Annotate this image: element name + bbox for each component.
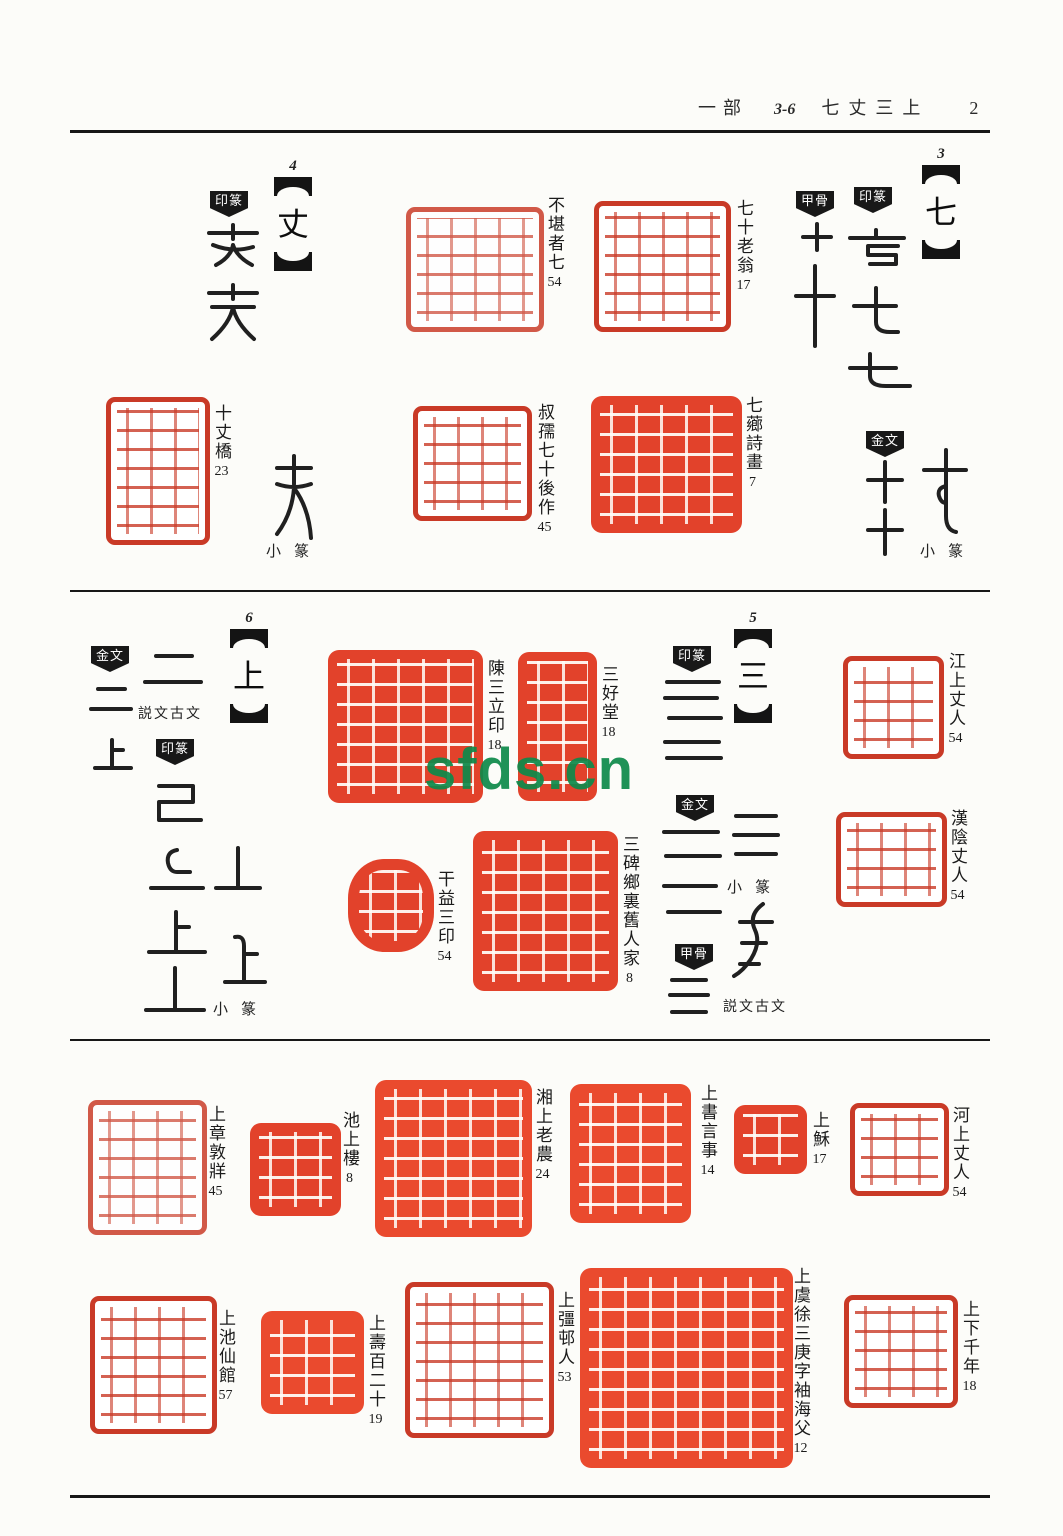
bracket-top-icon	[230, 629, 268, 648]
bracket-top-icon	[734, 629, 772, 648]
seal-caption-number: 54	[949, 731, 963, 747]
seal-caption: 干益三印 54	[435, 870, 454, 965]
seal-caption-text: 叔孺七十後作	[535, 403, 554, 517]
script-label-jinwen: 金文	[91, 646, 129, 672]
seal-script-shang-glyph-icon	[145, 844, 209, 896]
seal-caption-number: 14	[701, 1163, 715, 1179]
bronze-shang-glyph-icon	[87, 678, 135, 720]
bracket-bottom-icon	[922, 240, 960, 259]
seal-caption-text: 十丈橋	[212, 404, 231, 461]
seal-caption-number: 17	[813, 1152, 827, 1168]
seal-caption-text: 上虞徐三庚字袖海父	[791, 1267, 810, 1438]
bracket-bottom-icon	[734, 704, 772, 723]
seal-script-qi-glyph-icon	[848, 350, 912, 392]
bronze-qi-glyph-icon	[864, 506, 906, 558]
seal-caption-text: 上下千年	[960, 1300, 979, 1376]
entry-number: 6	[226, 610, 272, 627]
seal-impression	[413, 406, 532, 521]
seal-caption-text: 漢陰丈人	[948, 809, 967, 885]
seal-caption: 上彊邨人 53	[555, 1291, 574, 1386]
seal-caption-text: 上書言事	[698, 1084, 717, 1160]
seal-impression	[843, 656, 944, 759]
seal-impression	[850, 1103, 949, 1196]
radical-section: 一部	[698, 94, 748, 120]
script-label-shuowen: 説文古文	[723, 996, 787, 1016]
bracket-bottom-icon	[230, 704, 268, 723]
entry-range: 3-6	[774, 101, 795, 119]
script-label-yinzhuan: 印篆	[854, 187, 892, 213]
seal-impression	[250, 1123, 341, 1216]
seal-caption-number: 57	[219, 1388, 233, 1404]
seal-caption-text: 上穌	[810, 1111, 829, 1149]
seal-caption: 叔孺七十後作 45	[535, 403, 554, 536]
page-number: 2	[969, 98, 978, 119]
seal-impression	[473, 831, 618, 991]
seal-caption-number: 45	[209, 1184, 223, 1200]
seal-caption-text: 不堪者七	[545, 196, 564, 272]
seal-caption-text: 池上樓	[340, 1111, 359, 1168]
seal-script-zhang-glyph-icon	[201, 221, 265, 271]
seal-impression	[591, 396, 742, 533]
seal-caption-number: 19	[369, 1412, 383, 1428]
seal-caption-text: 干益三印	[435, 870, 454, 946]
seal-impression	[88, 1100, 207, 1235]
entry-bracket: 上	[230, 629, 268, 723]
dictionary-page: 一部 3-6 七丈三上 2 sfds.cn 3 七 印篆 甲骨 金文 小篆 不堪…	[0, 0, 1063, 1536]
bronze-shang-glyph-icon	[91, 734, 135, 778]
script-label-jinwen: 金文	[866, 431, 904, 457]
entry-headword: 上	[230, 648, 268, 704]
seal-caption-text: 上壽百二十	[366, 1314, 385, 1409]
headword-list: 七丈三上	[821, 94, 929, 120]
shuowen-ancient-san-glyph-icon	[727, 898, 783, 996]
seal-caption-text: 七十老翁	[734, 199, 753, 275]
script-label-jiagu: 甲骨	[796, 191, 834, 217]
oracle-bone-san-glyph-icon	[666, 970, 712, 1020]
seal-caption-number: 18	[963, 1379, 977, 1395]
seal-caption: 河上丈人 54	[950, 1106, 969, 1201]
seal-impression	[375, 1080, 532, 1237]
script-label-xiaozhuan: 小篆	[213, 998, 269, 1019]
seal-impression	[570, 1084, 691, 1223]
small-seal-zhang-glyph-icon	[263, 450, 325, 544]
seal-caption-text: 江上丈人	[946, 652, 965, 728]
seal-impression	[406, 207, 544, 332]
seal-caption: 上書言事 14	[698, 1084, 717, 1179]
seal-impression	[580, 1268, 793, 1468]
seal-caption-number: 45	[538, 520, 552, 536]
entry-bracket: 七	[922, 165, 960, 259]
seal-caption-text: 上池仙館	[216, 1309, 235, 1385]
seal-caption-text: 河上丈人	[950, 1106, 969, 1182]
entry-number: 4	[270, 158, 316, 175]
script-label-xiaozhuan: 小篆	[920, 540, 976, 561]
seal-caption-number: 54	[951, 888, 965, 904]
seal-caption: 七薌詩畫 7	[743, 396, 762, 491]
seal-caption: 上下千年 18	[960, 1300, 979, 1395]
script-label-yinzhuan: 印篆	[156, 739, 194, 765]
oracle-bone-qi-glyph-icon	[799, 220, 835, 254]
script-label-yinzhuan: 印篆	[673, 646, 711, 672]
entry-bracket: 丈	[274, 177, 312, 271]
seal-script-shang-glyph-icon	[145, 906, 209, 962]
seal-impression	[106, 397, 210, 545]
seal-caption-text: 陳三立印	[485, 659, 504, 735]
seal-caption: 十丈橋 23	[212, 404, 231, 480]
band-rule-2	[70, 1039, 990, 1041]
shuowen-ancient-shang-glyph-icon	[141, 643, 205, 697]
seal-caption: 湘上老農 24	[533, 1088, 552, 1183]
footer-rule	[70, 1495, 990, 1498]
seal-caption: 上章敦牂 45	[206, 1105, 225, 1200]
script-label-jiagu: 甲骨	[675, 944, 713, 970]
bronze-san-glyph-icon	[660, 822, 724, 930]
small-seal-san-glyph-icon	[730, 806, 782, 864]
seal-script-shang-glyph-icon	[141, 964, 209, 1020]
band-rule-1	[70, 590, 990, 592]
oracle-bone-qi-glyph-icon	[792, 262, 838, 350]
seal-impression	[348, 859, 434, 952]
seal-impression	[405, 1282, 554, 1438]
seal-caption-number: 8	[626, 971, 633, 987]
small-seal-qi-glyph-icon	[918, 444, 974, 544]
entry-head-san: 5 三	[730, 610, 776, 723]
seal-caption-number: 54	[548, 275, 562, 291]
seal-script-shang-glyph-icon	[212, 844, 264, 898]
entry-number: 5	[730, 610, 776, 627]
seal-impression	[594, 201, 731, 332]
seal-caption-text: 上章敦牂	[206, 1105, 225, 1181]
seal-caption: 七十老翁 17	[734, 199, 753, 294]
seal-caption-text: 湘上老農	[533, 1088, 552, 1164]
entry-headword: 三	[734, 648, 772, 704]
script-label-yinzhuan: 印篆	[210, 191, 248, 217]
seal-impression	[836, 812, 947, 907]
bracket-top-icon	[922, 165, 960, 184]
seal-caption-text: 三碑鄉裏舊人家	[620, 835, 639, 968]
seal-script-qi-glyph-icon	[846, 226, 910, 270]
seal-caption-text: 七薌詩畫	[743, 396, 762, 472]
entry-head-qi: 3 七	[918, 146, 964, 259]
seal-caption: 池上樓 8	[340, 1111, 359, 1187]
seal-impression	[844, 1295, 958, 1408]
entry-head-zhang: 4 丈	[270, 158, 316, 271]
seal-caption-number: 54	[438, 949, 452, 965]
seal-script-san-glyph-icon	[661, 674, 725, 776]
seal-script-qi-glyph-icon	[850, 284, 910, 338]
seal-caption-text: 上彊邨人	[555, 1291, 574, 1367]
seal-caption-number: 24	[536, 1167, 550, 1183]
seal-caption: 江上丈人 54	[946, 652, 965, 747]
watermark: sfds.cn	[424, 736, 634, 803]
bronze-qi-glyph-icon	[863, 458, 907, 506]
seal-impression	[90, 1296, 217, 1434]
seal-caption: 上池仙館 57	[216, 1309, 235, 1404]
script-label-xiaozhuan: 小篆	[266, 540, 322, 561]
seal-caption: 不堪者七 54	[545, 196, 564, 291]
seal-caption: 三好堂 18	[599, 665, 618, 741]
seal-caption-number: 12	[794, 1441, 808, 1457]
seal-caption: 上穌 17	[810, 1111, 829, 1168]
seal-impression	[261, 1311, 364, 1414]
seal-caption-number: 7	[749, 475, 756, 491]
small-seal-shang-glyph-icon	[215, 918, 273, 992]
seal-caption: 漢陰丈人 54	[948, 809, 967, 904]
bracket-bottom-icon	[274, 252, 312, 271]
entry-headword: 丈	[274, 196, 312, 252]
seal-caption: 上壽百二十 19	[366, 1314, 385, 1428]
page-header: 一部 3-6 七丈三上 2	[698, 94, 978, 120]
script-label-shuowen: 説文古文	[138, 703, 202, 723]
seal-caption-number: 17	[737, 278, 751, 294]
seal-caption-number: 8	[346, 1171, 353, 1187]
entry-headword: 七	[922, 184, 960, 240]
script-label-xiaozhuan: 小篆	[727, 876, 783, 897]
seal-impression	[734, 1105, 807, 1174]
entry-bracket: 三	[734, 629, 772, 723]
seal-caption: 三碑鄉裏舊人家 8	[620, 835, 639, 987]
seal-caption-number: 54	[953, 1185, 967, 1201]
seal-caption-text: 三好堂	[599, 665, 618, 722]
entry-number: 3	[918, 146, 964, 163]
seal-caption-number: 53	[558, 1370, 572, 1386]
seal-script-shang-glyph-icon	[147, 776, 207, 834]
bracket-top-icon	[274, 177, 312, 196]
script-label-jinwen: 金文	[676, 795, 714, 821]
header-rule	[70, 130, 990, 133]
seal-caption-number: 23	[215, 464, 229, 480]
seal-script-zhang-glyph-icon	[201, 283, 265, 345]
seal-caption: 上虞徐三庚字袖海父 12	[791, 1267, 810, 1457]
entry-head-shang: 6 上	[226, 610, 272, 723]
